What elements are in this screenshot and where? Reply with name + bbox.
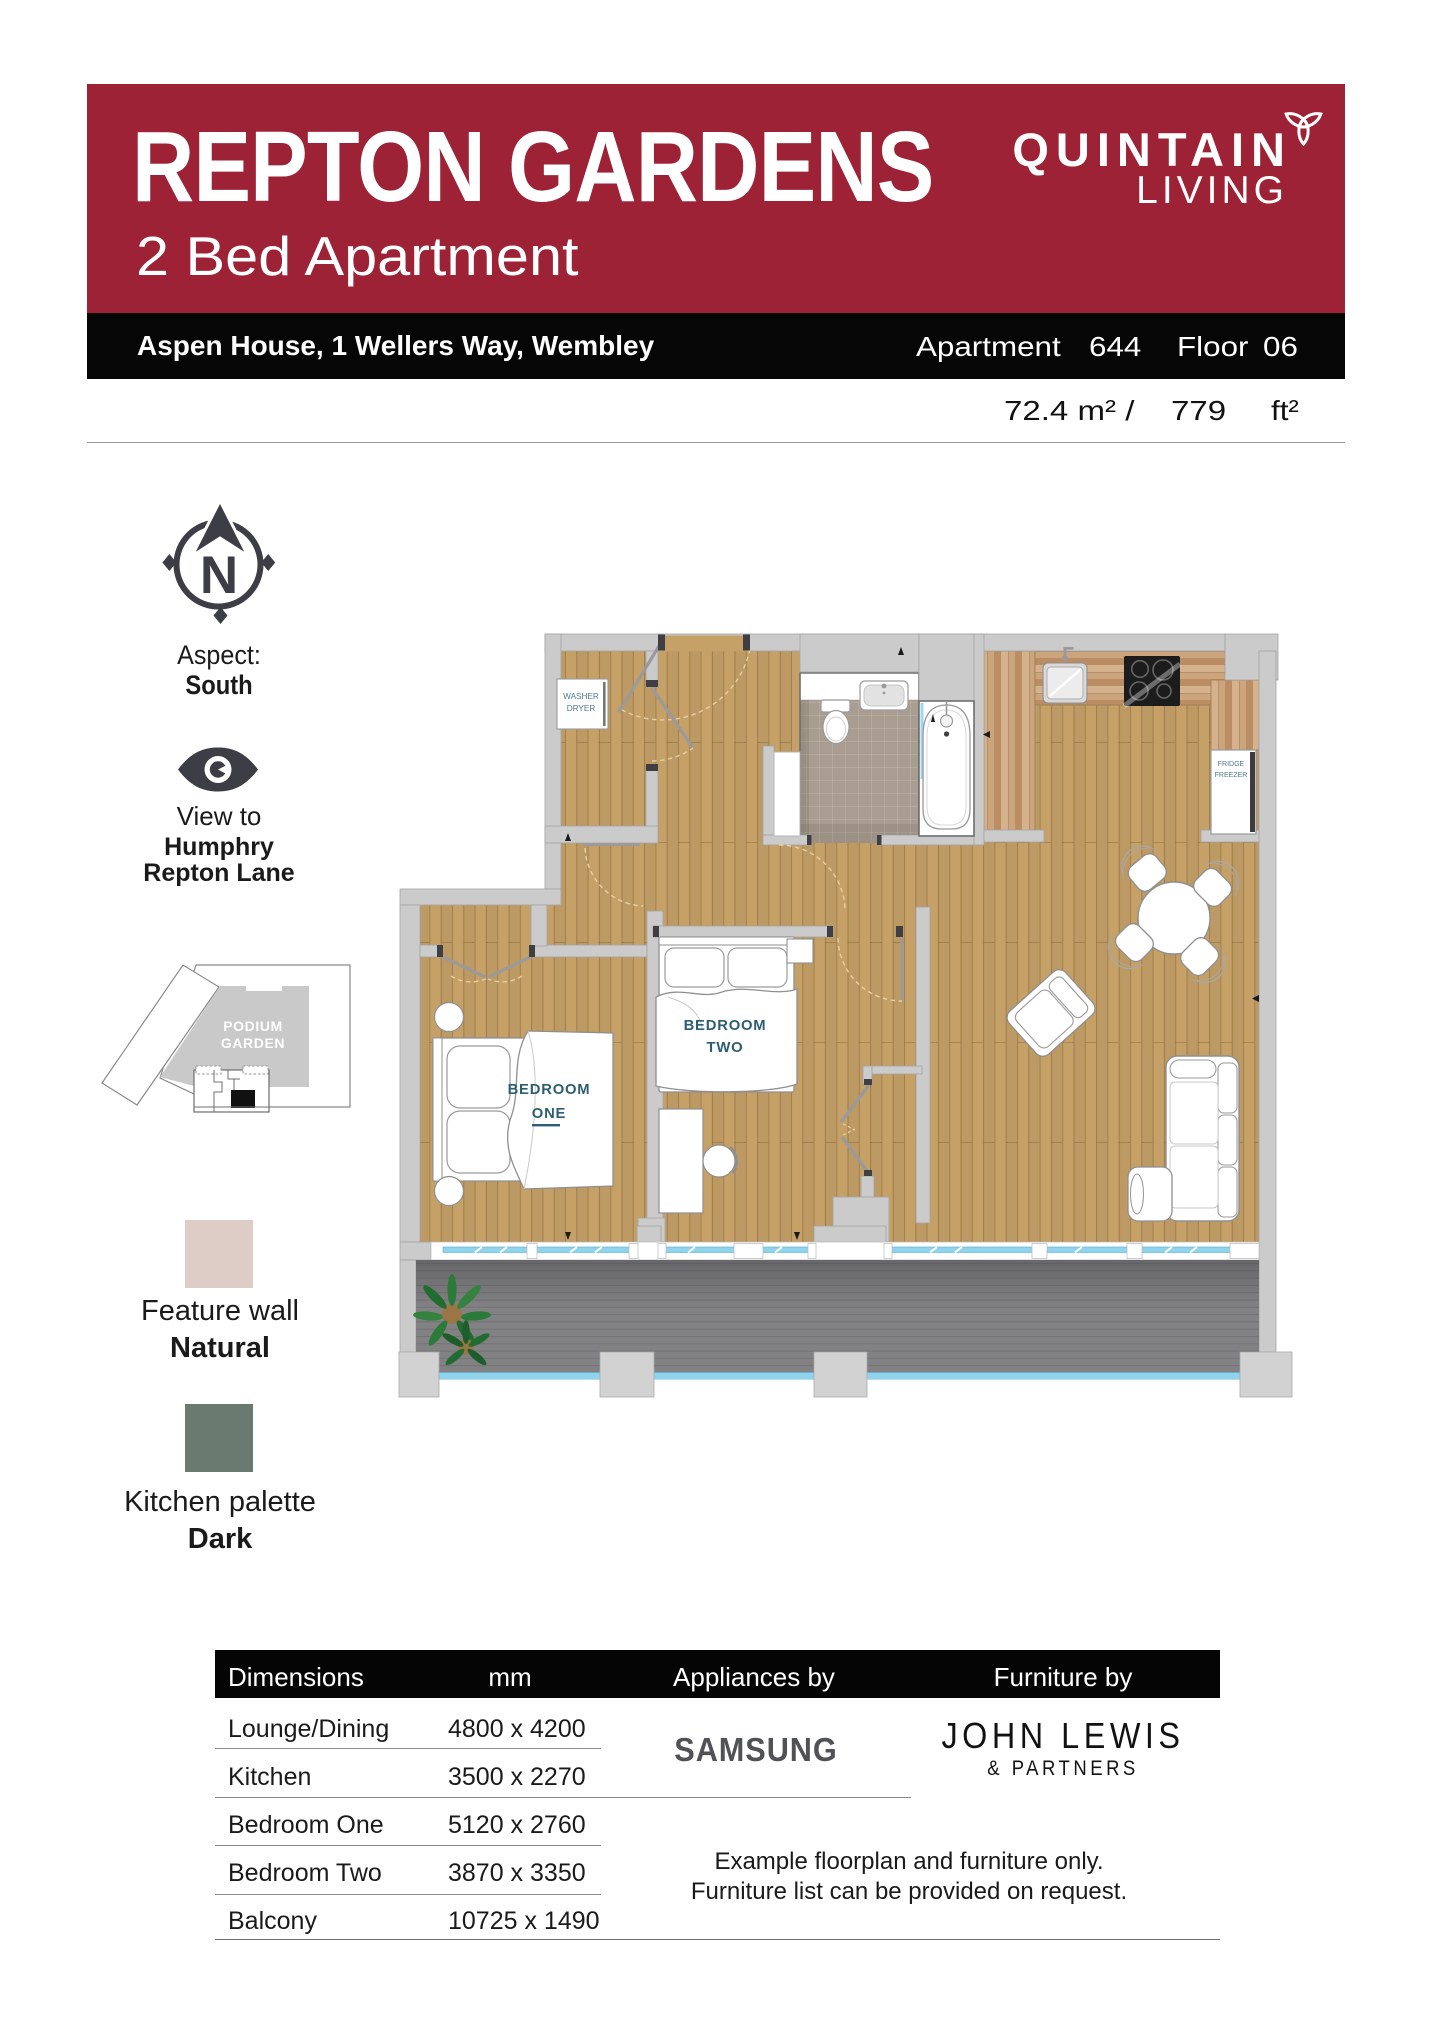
svg-text:FRIDGE: FRIDGE [1218, 761, 1245, 768]
svg-text:GARDEN: GARDEN [221, 1035, 285, 1051]
svg-text:N: N [200, 546, 238, 605]
svg-text:BEDROOM: BEDROOM [684, 1018, 767, 1034]
svg-text:BEDROOM: BEDROOM [508, 1082, 591, 1098]
svg-text:PODIUM: PODIUM [223, 1018, 283, 1034]
svg-text:FREEZER: FREEZER [1215, 772, 1248, 779]
svg-text:ONE: ONE [532, 1106, 566, 1122]
svg-text:TWO: TWO [707, 1040, 744, 1056]
svg-text:DRYER: DRYER [567, 704, 596, 713]
svg-text:WASHER: WASHER [563, 692, 599, 701]
